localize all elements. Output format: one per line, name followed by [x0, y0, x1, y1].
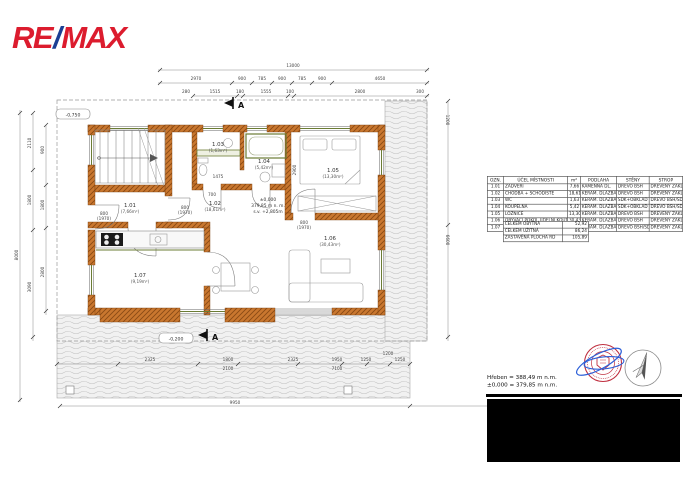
room-table-header: m²: [568, 176, 581, 183]
section-letter: A: [238, 101, 245, 110]
room-area: (18,61m²): [204, 207, 225, 212]
summary-cell: 86,24: [563, 228, 589, 235]
room-table-cell: 1.06: [487, 218, 503, 225]
elevation-clear-height: s.v. +2,805m: [253, 209, 282, 215]
dimension-label: 900: [40, 146, 45, 154]
room-table-header: STĚNY: [617, 176, 650, 183]
level-entry: -0,750: [66, 113, 81, 119]
room-table-header: STROP: [649, 176, 682, 183]
room-table-cell: 1.03: [487, 197, 503, 204]
room-table-cell: DŘEVĚNÝ ZÁKLOP: [649, 225, 682, 232]
dimension-label: 2900: [292, 164, 297, 175]
room-table-cell: KERAM. DLAŽBA: [581, 197, 617, 204]
dimension-label: 1800: [27, 194, 32, 205]
room-table-cell: 5,42: [568, 204, 581, 211]
room-area: (9,19m²): [131, 279, 150, 284]
summary-cell: CELKEM OBYTNÁ: [503, 221, 562, 228]
staircase: [95, 128, 165, 186]
dimension-label: 9950: [230, 400, 241, 405]
wardrobe: [298, 196, 376, 211]
room-table-cell: WC: [504, 197, 568, 204]
terrace-post: [344, 386, 352, 394]
elevation-height: 379,85 m n. m.: [251, 203, 285, 209]
dimension-label: 13000: [286, 63, 300, 68]
room-table-cell: 1,63: [568, 197, 581, 204]
summary-cell: 105,89: [563, 235, 589, 242]
dimension-label: 2100: [223, 366, 234, 371]
kitchen-counter: [96, 231, 204, 248]
dimension-label: 785: [258, 76, 266, 81]
level-terrace: -0,200: [169, 337, 184, 343]
room-table-cell: 7,66: [568, 184, 581, 191]
room-table-cell: SDK+OBKLAD: [617, 197, 650, 204]
summary-row: CELKEM UŽITNÁ86,24: [503, 228, 588, 235]
washing-machine: [272, 164, 285, 177]
dimension-label: 8000: [14, 249, 19, 260]
summary-cell: 52,92: [563, 221, 589, 228]
dimension-label: 700: [208, 192, 216, 197]
elevation-note: ±0,000 379,85 m n. m. s.v. +2,805m: [251, 197, 285, 215]
drawing-sheet: RE/MAX: [0, 0, 684, 484]
room-table-cell: 1.04: [487, 204, 503, 211]
dimension-label: 785: [298, 76, 306, 81]
room-table-cell: KERAM. DLAŽBA: [581, 204, 617, 211]
toilet: [198, 158, 208, 163]
dimension-label: 300: [416, 89, 424, 94]
section-marker-top: A: [224, 97, 245, 110]
room-table-row: 1.01ZÁDVEŘÍ7,66KAMENNÁ DL.DŘEVO BSHDŘEVĚ…: [487, 184, 682, 191]
stair-direction-arrow: [150, 154, 158, 162]
dimension-label: 900: [238, 76, 246, 81]
room-table-cell: DŘEVĚNÝ ZÁKLOP: [649, 211, 682, 218]
sofa: [289, 250, 363, 302]
section-letter: A: [212, 333, 219, 342]
dimension-label: 2800: [355, 89, 366, 94]
dimension-label: 1555: [261, 89, 272, 94]
room-table-cell: CHODBA + SCHODIŠTĚ: [504, 191, 568, 198]
room-table-cell: 13,30: [568, 211, 581, 218]
dimension-label: 1475: [213, 174, 224, 179]
room-table-row: 1.02CHODBA + SCHODIŠTĚ18,61KERAM. DLAŽBA…: [487, 191, 682, 198]
dimension-label: 2325: [145, 357, 156, 362]
dimension-label: 1515: [210, 89, 221, 94]
room-table-cell: DŘEVO BSH: [617, 191, 650, 198]
dimension-label: 2110: [27, 137, 32, 148]
coffee-table: [321, 259, 350, 273]
dimension-label: 1800: [40, 199, 45, 210]
summary-row: CELKEM OBYTNÁ52,92: [503, 221, 588, 228]
dining-table: [213, 263, 259, 294]
room-table-cell: KOUPELNA: [504, 204, 568, 211]
room-table-cell: KERAM. DLAŽBA: [581, 191, 617, 198]
dimension-label: (1970): [97, 216, 111, 221]
north-arrow-icon: [625, 350, 661, 386]
room-table-cell: DŘEVO BSH: [617, 218, 650, 225]
dimension-label: (1970): [178, 210, 192, 215]
room-table-cell: ZÁDVEŘÍ: [504, 184, 568, 191]
dimension-label: 2800: [40, 266, 45, 277]
summary-cell: CELKEM UŽITNÁ: [503, 228, 562, 235]
dimension-label: 4650: [375, 76, 386, 81]
dimension-label: 1250: [361, 357, 372, 362]
room-area: (7,66m²): [121, 209, 140, 214]
summary-row: ZASTAVĚNÁ PLOCHA RD105,89: [503, 235, 588, 242]
room-table-cell: SDK+OBKLAD: [617, 204, 650, 211]
room-table-header: ÚČEL MÍSTNOSTI: [504, 176, 568, 183]
room-area: (30,43m²): [319, 242, 340, 247]
room-table-cell: DŘEVO BSH/SDK: [649, 197, 682, 204]
elevation-notes: Hřeben = 388,49 m n.m. ±0,000 = 379,85 m…: [487, 374, 557, 389]
washbasin: [260, 172, 270, 182]
dimension-label: 6600: [445, 235, 450, 246]
dimension-label: 900: [318, 76, 326, 81]
room-table-header: PODLAHA: [581, 176, 617, 183]
dimension-label: 280: [182, 89, 190, 94]
title-block-redacted: [487, 399, 680, 462]
title-block-divider: [486, 394, 682, 397]
room-table-cell: 1.07: [487, 225, 503, 232]
room-table-cell: DŘEVĚNÝ ZÁKLOP: [649, 218, 682, 225]
dimension-label: 100: [286, 89, 294, 94]
terrace-post: [66, 386, 74, 394]
room-table-cell: DŘEVO BSH/SDK: [617, 225, 650, 232]
ridge-note: Hřeben = 388,49 m n.m.: [487, 374, 557, 381]
room-table-row: 1.04KOUPELNA5,42KERAM. DLAŽBASDK+OBKLADD…: [487, 204, 682, 211]
room-table-cell: DŘEVO BSH: [617, 184, 650, 191]
room-table-row: 1.03WC1,63KERAM. DLAŽBASDK+OBKLADDŘEVO B…: [487, 197, 682, 204]
room-table-cell: KAMENNÁ DL.: [581, 184, 617, 191]
zero-note: ±0,000 = 379,85 m n.m.: [487, 381, 557, 388]
terrace-sliding-door: [275, 309, 332, 315]
dimension-label: 2970: [191, 76, 202, 81]
room-area: (1,63m²): [209, 148, 228, 153]
room-table-header: OZN.: [487, 176, 503, 183]
room-table-row: 1.05LOŽNICE13,30KERAM. DLAŽBADŘEVO BSHDŘ…: [487, 211, 682, 218]
elevation-zero: ±0,000: [260, 197, 276, 203]
dimension-label: (1970): [297, 225, 311, 230]
area-summary-table: CELKEM OBYTNÁ52,92CELKEM UŽITNÁ86,24ZAST…: [503, 221, 589, 242]
dimension-label: 1200: [383, 351, 394, 356]
room-table-cell: KERAM. DLAŽBA: [581, 211, 617, 218]
room-table-cell: DŘEVĚNÝ ZÁKLOP: [649, 191, 682, 198]
dimension-label: 1800: [223, 357, 234, 362]
room-table-cell: DŘEVO BSH: [617, 211, 650, 218]
washbasin: [224, 139, 233, 148]
room-table-cell: DŘEVO BSH/SDK: [649, 204, 682, 211]
dimension-label: 2325: [288, 357, 299, 362]
summary-cell: ZASTAVĚNÁ PLOCHA RD: [503, 235, 562, 242]
dimension-label: 7100: [332, 366, 343, 371]
architect-stamp-icon: [573, 343, 624, 381]
room-area: (13,30m²): [322, 174, 343, 179]
dimension-label: 1250: [395, 357, 406, 362]
room-table-cell: 18,61: [568, 191, 581, 198]
room-table-cell: LOŽNICE: [504, 211, 568, 218]
room-table-cell: 1.02: [487, 191, 503, 198]
dimension-label: 900: [278, 76, 286, 81]
room-table-cell: 1.01: [487, 184, 503, 191]
dimension-label: 1950: [332, 357, 343, 362]
room-area: (5,42m²): [255, 165, 274, 170]
room-table-cell: 1.05: [487, 211, 503, 218]
stove: [101, 233, 123, 246]
room-table-cell: DŘEVĚNÝ ZÁKLOP: [649, 184, 682, 191]
dimension-label: 1200: [445, 115, 450, 126]
dimension-label: 180: [236, 89, 244, 94]
dimension-label: 3090: [27, 281, 32, 292]
